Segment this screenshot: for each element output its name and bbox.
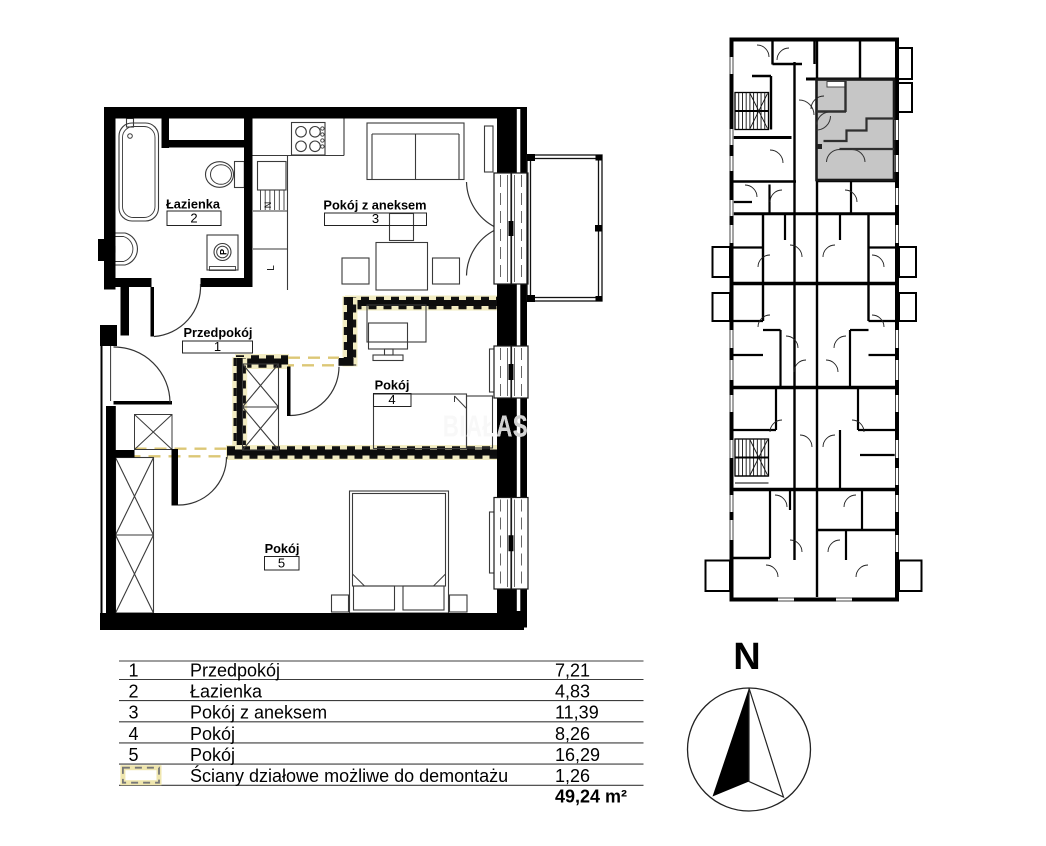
svg-text:N: N xyxy=(733,636,760,678)
svg-text:4,83: 4,83 xyxy=(555,682,590,702)
svg-text:Ściany działowe możliwe do dem: Ściany działowe możliwe do demontażu xyxy=(190,765,508,786)
svg-text:Pokój: Pokój xyxy=(190,724,235,744)
svg-text:49,24 m²: 49,24 m² xyxy=(555,787,627,807)
svg-text:N: N xyxy=(263,202,273,209)
svg-text:P: P xyxy=(219,249,229,255)
svg-text:Pokój: Pokój xyxy=(375,378,410,393)
svg-text:3: 3 xyxy=(372,211,379,226)
svg-text:1: 1 xyxy=(214,339,221,354)
svg-text:2: 2 xyxy=(129,682,139,702)
svg-text:1,26: 1,26 xyxy=(555,766,590,786)
svg-text:Pokój: Pokój xyxy=(190,745,235,765)
svg-text:7,21: 7,21 xyxy=(555,661,590,681)
svg-text:3: 3 xyxy=(129,703,139,723)
svg-text:2: 2 xyxy=(190,211,197,226)
svg-text:4: 4 xyxy=(388,392,395,407)
svg-text:Pokój: Pokój xyxy=(265,541,300,556)
svg-text:1: 1 xyxy=(129,661,139,681)
svg-text:5: 5 xyxy=(129,745,139,765)
svg-text:4: 4 xyxy=(129,724,139,744)
svg-text:16,29: 16,29 xyxy=(555,745,600,765)
svg-text:Łazienka: Łazienka xyxy=(190,682,263,702)
svg-text:Przedpokój: Przedpokój xyxy=(190,661,280,681)
svg-text:L: L xyxy=(266,265,277,271)
svg-text:Łazienka: Łazienka xyxy=(166,197,221,212)
svg-text:8,26: 8,26 xyxy=(555,724,590,744)
svg-text:5: 5 xyxy=(278,556,285,571)
svg-text:Pokój z aneksem: Pokój z aneksem xyxy=(190,703,327,723)
svg-text:Przedpokój: Przedpokój xyxy=(184,325,253,340)
svg-text:11,39: 11,39 xyxy=(555,703,599,723)
